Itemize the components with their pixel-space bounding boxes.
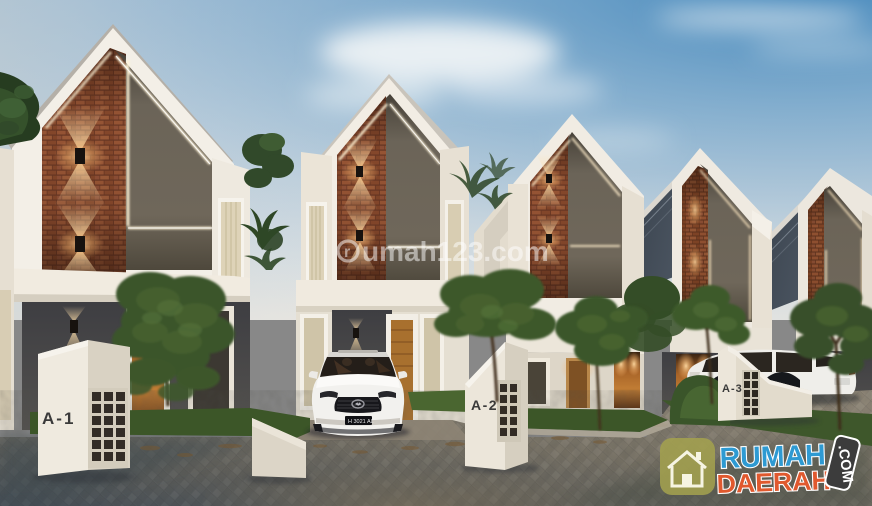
svg-text:A-2: A-2 xyxy=(471,397,498,413)
svg-text:r: r xyxy=(344,244,350,261)
svg-text:A-3: A-3 xyxy=(722,383,743,395)
svg-text:A-1: A-1 xyxy=(42,409,75,428)
svg-text:H 3021 AL: H 3021 AL xyxy=(348,419,374,425)
svg-text:DAERAH: DAERAH xyxy=(716,465,831,499)
svg-text:umah123.com: umah123.com xyxy=(362,236,549,267)
